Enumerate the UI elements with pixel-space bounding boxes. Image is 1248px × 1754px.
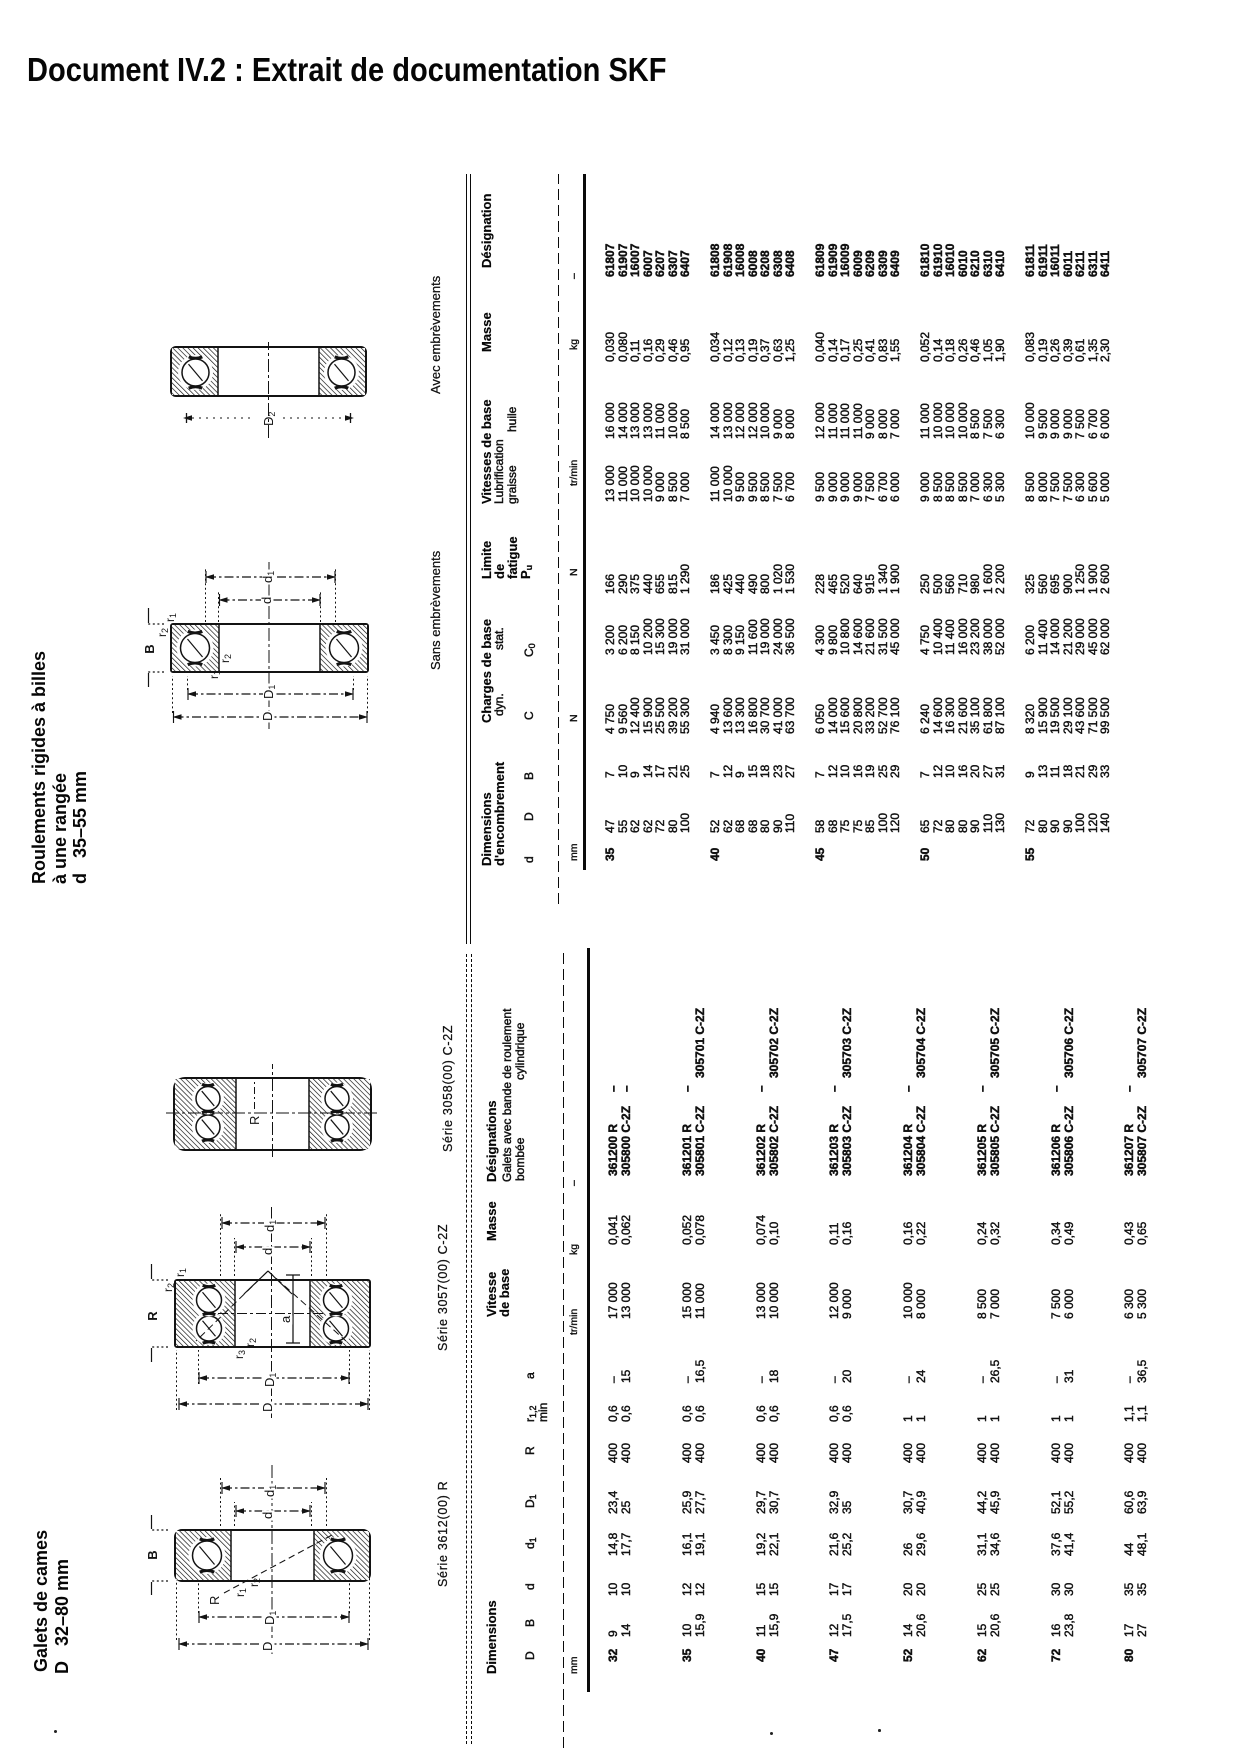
svg-text:D: D	[260, 1403, 275, 1412]
svg-text:a: a	[278, 1315, 293, 1323]
svg-text:r1: r1	[173, 1268, 188, 1277]
svg-text:B: B	[145, 1550, 160, 1559]
svg-text:r2: r2	[161, 1283, 176, 1292]
svg-text:R: R	[145, 1311, 160, 1321]
svg-text:D2: D2	[261, 412, 277, 426]
svg-text:R: R	[247, 1116, 262, 1125]
svg-text:D: D	[260, 1642, 275, 1651]
svg-text:r1: r1	[233, 1588, 248, 1597]
svg-text:d: d	[260, 1248, 275, 1255]
svg-text:B: B	[142, 644, 157, 653]
svg-text:d: d	[260, 1512, 275, 1519]
svg-text:r3: r3	[232, 1350, 247, 1359]
svg-text:R: R	[207, 1596, 222, 1605]
svg-text:r2: r2	[155, 628, 170, 637]
svg-text:D: D	[260, 712, 275, 721]
svg-text:r1: r1	[163, 613, 178, 622]
svg-text:d: d	[259, 597, 274, 604]
